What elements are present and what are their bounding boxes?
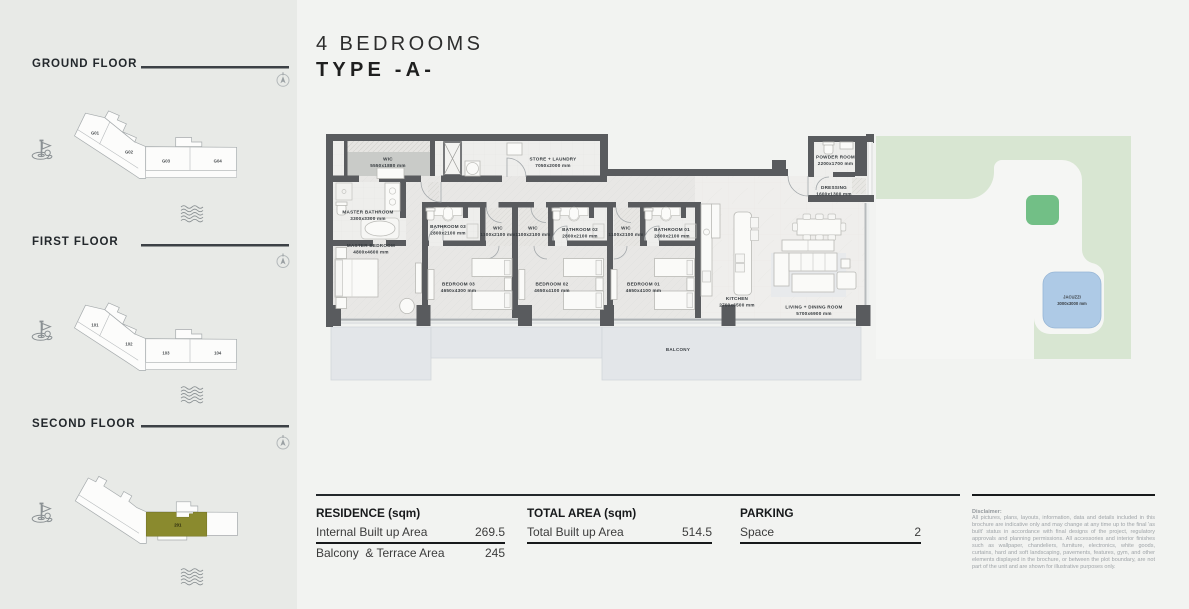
svg-text:WIC: WIC <box>528 226 538 231</box>
svg-text:DRESSING: DRESSING <box>821 185 847 190</box>
svg-text:5550x1880 mm: 5550x1880 mm <box>370 163 405 168</box>
svg-text:MASTER BEDROOM: MASTER BEDROOM <box>347 243 395 248</box>
svg-text:3000x3000 mm: 3000x3000 mm <box>1057 301 1087 306</box>
svg-text:3300x3300 mm: 3300x3300 mm <box>350 216 385 221</box>
svg-text:MASTER BATHROOM: MASTER BATHROOM <box>342 210 393 215</box>
svg-text:BATHROOM 03: BATHROOM 03 <box>430 224 466 229</box>
svg-text:4800x4600 mm: 4800x4600 mm <box>353 250 388 255</box>
svg-text:STORE + LAUNDRY: STORE + LAUNDRY <box>529 157 576 162</box>
svg-text:101: 101 <box>91 322 99 327</box>
svg-text:BEDROOM 01: BEDROOM 01 <box>627 282 660 287</box>
svg-text:BEDROOM 03: BEDROOM 03 <box>442 282 475 287</box>
svg-text:WIC: WIC <box>383 157 393 162</box>
svg-text:2800x2100 mm: 2800x2100 mm <box>562 234 597 239</box>
svg-text:1100x2100 mm: 1100x2100 mm <box>515 232 550 237</box>
svg-text:7050x2000 mm: 7050x2000 mm <box>535 163 570 168</box>
svg-text:2700x6500 mm: 2700x6500 mm <box>719 303 754 308</box>
svg-text:WIC: WIC <box>621 226 631 231</box>
svg-text:G01: G01 <box>91 130 100 135</box>
svg-text:BALCONY: BALCONY <box>666 347 690 352</box>
svg-text:104: 104 <box>214 351 222 356</box>
svg-text:BATHROOM 01: BATHROOM 01 <box>654 227 690 232</box>
svg-text:1100x2100 mm: 1100x2100 mm <box>608 232 643 237</box>
svg-text:POWDER ROOM: POWDER ROOM <box>816 155 855 160</box>
svg-text:WIC: WIC <box>493 226 503 231</box>
svg-text:LIVING + DINING ROOM: LIVING + DINING ROOM <box>785 305 842 310</box>
svg-text:102: 102 <box>125 342 133 347</box>
svg-text:1600x1300 mm: 1600x1300 mm <box>816 192 851 197</box>
svg-text:4650x4300 mm: 4650x4300 mm <box>441 288 476 293</box>
svg-text:201: 201 <box>174 523 182 528</box>
svg-text:103: 103 <box>162 351 170 356</box>
svg-text:KITCHEN: KITCHEN <box>726 296 749 301</box>
svg-text:4650x4100 mm: 4650x4100 mm <box>534 288 569 293</box>
svg-text:5700x6900 mm: 5700x6900 mm <box>796 311 831 316</box>
svg-text:G03: G03 <box>162 159 171 164</box>
svg-text:2800x2100 mm: 2800x2100 mm <box>430 231 465 236</box>
svg-text:BATHROOM 02: BATHROOM 02 <box>562 227 598 232</box>
svg-text:BEDROOM 02: BEDROOM 02 <box>536 282 569 287</box>
svg-text:4650x4100 mm: 4650x4100 mm <box>626 288 661 293</box>
svg-text:G02: G02 <box>125 150 134 155</box>
svg-text:2200x1700 mm: 2200x1700 mm <box>818 161 853 166</box>
svg-text:JACUZZI: JACUZZI <box>1063 295 1081 300</box>
svg-text:2800x2100 mm: 2800x2100 mm <box>654 234 689 239</box>
svg-text:G04: G04 <box>214 159 223 164</box>
svg-text:1100x2100 mm: 1100x2100 mm <box>480 232 515 237</box>
